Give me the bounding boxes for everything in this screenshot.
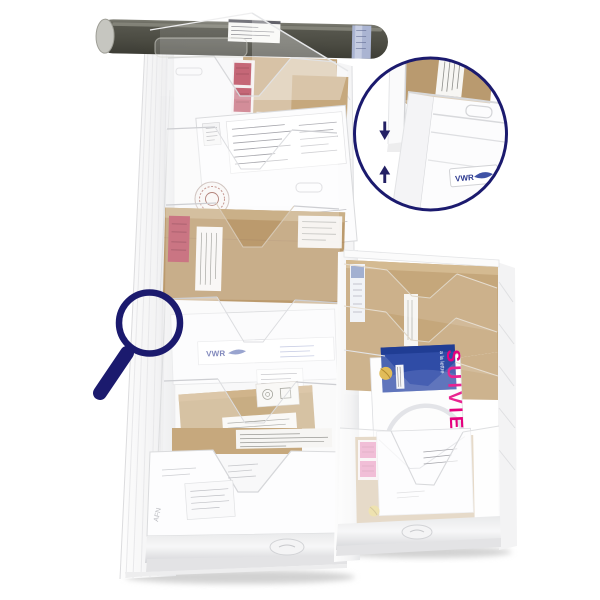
svg-text:a la lettre: a la lettre: [438, 351, 445, 374]
svg-text:VWR: VWR: [455, 173, 475, 184]
